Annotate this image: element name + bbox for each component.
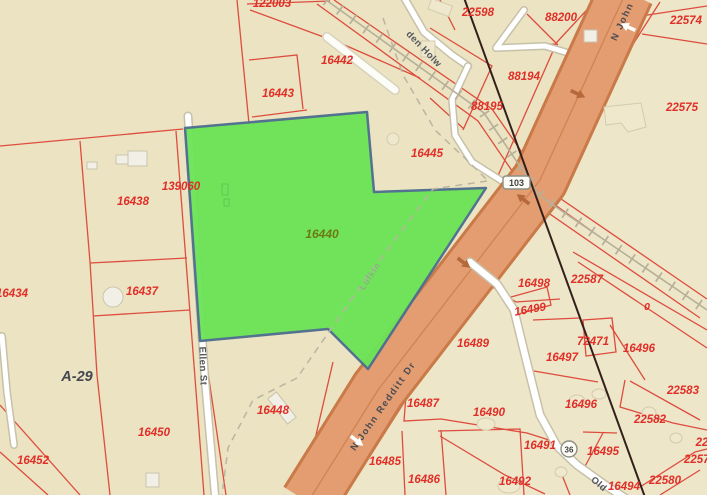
selected-parcel-label: 16440 — [305, 227, 339, 241]
parcel-label: 16498 — [518, 278, 551, 290]
parcel-label: 16442 — [321, 55, 354, 67]
parcel-label: 88194 — [508, 71, 541, 83]
parcel-label: 16443 — [262, 88, 295, 100]
parcel-label: 139060 — [162, 181, 201, 193]
parcel-label: 22580 — [648, 475, 682, 487]
route-shield-36: 36 — [561, 441, 577, 457]
parcel-label: 16445 — [411, 148, 444, 160]
parcel-label: 16491 — [524, 440, 556, 452]
survey-abstract-label: A-29 — [60, 369, 92, 385]
parcel-label: 16487 — [407, 398, 440, 410]
parcel-label: 16494 — [608, 481, 641, 493]
parcel-label: 16437 — [126, 286, 159, 298]
parcel-label: 72471 — [577, 336, 609, 348]
parcel-map-canvas[interactable]: 122003 22598 88200 22574 16442 88194 881… — [0, 0, 707, 495]
parcel-label: 22583 — [666, 385, 700, 397]
parcel-label: 16497 — [546, 352, 579, 364]
route-shield-103-label: 103 — [509, 178, 524, 188]
parcel-label: 88200 — [545, 12, 578, 24]
street-label-ellen-st: Ellen St — [196, 346, 208, 386]
route-shield-103: 103 — [503, 176, 530, 189]
parcel-label: 22574 — [669, 15, 703, 27]
parcel-label: 22575 — [665, 102, 699, 114]
parcel-label: 16448 — [257, 405, 290, 417]
parcel-label: 16492 — [499, 476, 532, 488]
parcel-label: 16450 — [138, 427, 171, 439]
map-viewport[interactable]: 122003 22598 88200 22574 16442 88194 881… — [0, 0, 707, 495]
parcel-label: 0 — [644, 301, 650, 313]
parcel-label: 16486 — [408, 474, 441, 486]
parcel-label: 22582 — [633, 414, 667, 426]
parcel-label: 16496 — [623, 343, 656, 355]
parcel-label: 16489 — [457, 338, 490, 350]
parcel-label: 16452 — [17, 455, 50, 467]
parcel-label: 22598 — [461, 7, 495, 19]
parcel-label: 122003 — [253, 0, 292, 10]
parcel-label: 22 — [695, 437, 707, 449]
parcel-label: 16496 — [565, 399, 598, 411]
parcel-label: 16438 — [117, 196, 150, 208]
parcel-label: 88195 — [471, 101, 504, 113]
parcel-label: 16485 — [369, 456, 402, 468]
parcel-label: 22579 — [683, 454, 707, 466]
parcel-label: 16495 — [587, 446, 620, 458]
route-shield-36-label: 36 — [565, 446, 574, 455]
parcel-label: 16434 — [0, 288, 29, 300]
parcel-label: 22587 — [570, 274, 604, 286]
parcel-label: 16490 — [473, 407, 506, 419]
